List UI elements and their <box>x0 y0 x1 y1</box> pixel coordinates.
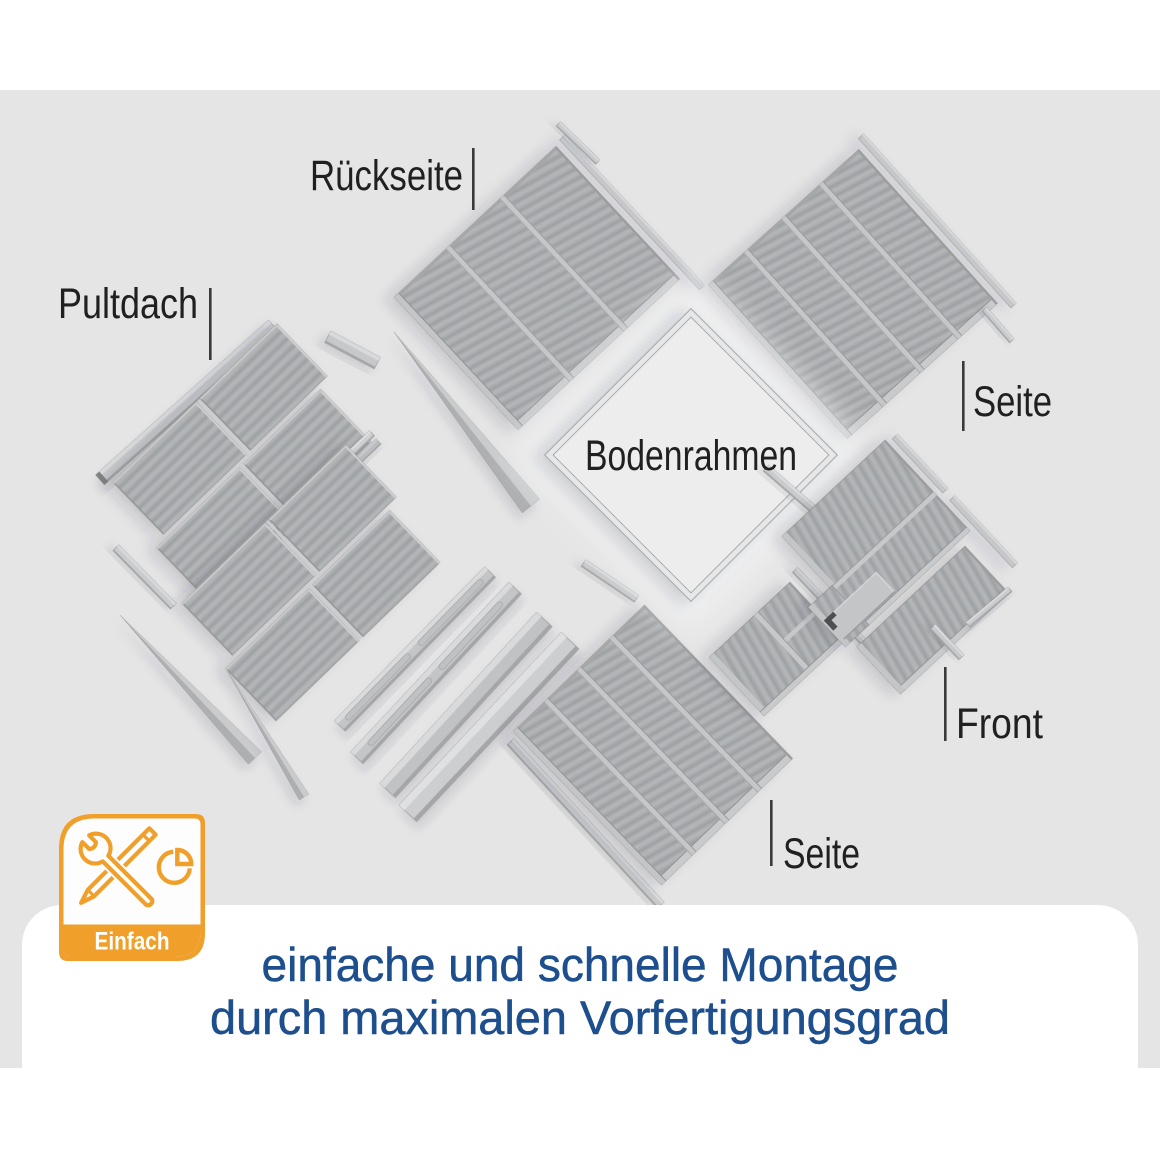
svg-text:Einfach: Einfach <box>95 928 170 956</box>
svg-text:Rückseite: Rückseite <box>310 152 463 200</box>
svg-text:Front: Front <box>956 700 1043 748</box>
svg-text:Bodenrahmen: Bodenrahmen <box>585 432 797 480</box>
svg-text:Seite: Seite <box>973 378 1052 426</box>
svg-text:durch maximalen Vorfertigungsg: durch maximalen Vorfertigungsgrad <box>210 991 950 1044</box>
svg-text:einfache und schnelle Montage: einfache und schnelle Montage <box>262 938 899 991</box>
svg-text:Seite: Seite <box>783 830 860 878</box>
svg-text:Pultdach: Pultdach <box>58 280 198 328</box>
